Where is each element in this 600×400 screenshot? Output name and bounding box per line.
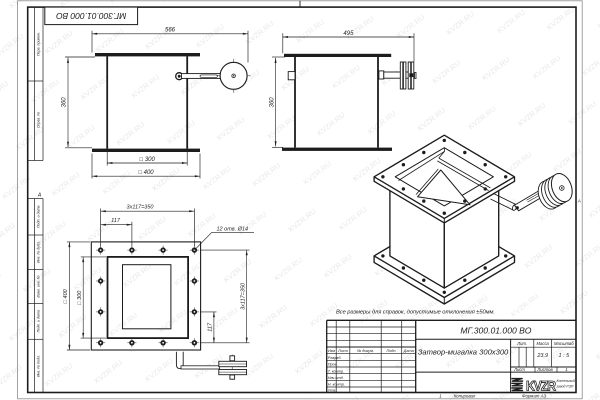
svg-text:Дата: Дата — [403, 349, 414, 353]
svg-text:360: 360 — [62, 97, 68, 108]
svg-text:Т. контр.: Т. контр. — [328, 369, 344, 373]
svg-text:□ 400: □ 400 — [138, 170, 154, 176]
svg-text:Лит.: Лит. — [516, 341, 527, 346]
svg-text:3х117=350: 3х117=350 — [240, 282, 246, 310]
svg-text:117: 117 — [208, 322, 214, 332]
svg-text:А: А — [577, 199, 581, 204]
svg-text:KVZR: KVZR — [526, 378, 556, 394]
svg-text:завод РЭП: завод РЭП — [556, 385, 574, 389]
svg-text:1 : 5: 1 : 5 — [558, 353, 570, 359]
svg-text:Затвор-мигалка 300х300: Затвор-мигалка 300х300 — [418, 347, 509, 356]
svg-text:МГ.300.01.000 ВО: МГ.300.01.000 ВО — [56, 11, 127, 21]
svg-text:Все размеры для справок, допус: Все размеры для справок, допустимые откл… — [336, 309, 495, 315]
svg-text:Пров.: Пров. — [328, 363, 338, 367]
svg-text:□ 400: □ 400 — [63, 288, 69, 303]
svg-text:Подп. и дата: Подп. и дата — [37, 205, 41, 228]
svg-text:117: 117 — [111, 218, 121, 224]
svg-text:□ 300: □ 300 — [77, 290, 83, 305]
svg-text:Подп.: Подп. — [386, 349, 396, 353]
svg-text:Утв.: Утв. — [328, 389, 337, 393]
svg-text:Взам. инв. №: Взам. инв. № — [37, 275, 41, 297]
svg-text:Масштаб: Масштаб — [554, 341, 574, 346]
svg-text:Котельный: Котельный — [557, 379, 576, 383]
svg-text:1: 1 — [565, 367, 567, 372]
svg-text:Перв. примен.: Перв. примен. — [37, 32, 41, 56]
svg-text:Справ. №: Справ. № — [37, 112, 41, 128]
svg-text:Листов: Листов — [536, 367, 553, 372]
svg-text:566: 566 — [165, 28, 176, 34]
svg-text:Инв. № дубл.: Инв. № дубл. — [37, 241, 41, 263]
svg-text:495: 495 — [343, 31, 354, 37]
svg-text:Инв. № подл.: Инв. № подл. — [37, 355, 41, 377]
svg-text:А: А — [37, 193, 42, 199]
svg-text:□ 300: □ 300 — [140, 157, 156, 163]
svg-text:Копировал: Копировал — [454, 394, 476, 399]
svg-text:Подп. и дата: Подп. и дата — [37, 310, 41, 333]
svg-text:МГ.300.01.000 ВО: МГ.300.01.000 ВО — [460, 325, 531, 335]
svg-text:Изм: Изм — [328, 349, 335, 353]
svg-text:360: 360 — [269, 97, 275, 108]
svg-text:Н. контр.: Н. контр. — [328, 383, 345, 387]
svg-text:Масса: Масса — [537, 341, 550, 346]
svg-text:Разраб.: Разраб. — [328, 356, 342, 360]
svg-text:3х117=350: 3х117=350 — [127, 205, 155, 211]
svg-text:№ докум.: № докум. — [357, 349, 374, 353]
svg-text:Нач.отд.: Нач.отд. — [328, 376, 344, 380]
svg-text:Формат А3: Формат А3 — [522, 394, 547, 399]
svg-text:23,9: 23,9 — [536, 353, 548, 359]
svg-text:Лист: Лист — [337, 349, 348, 353]
svg-text:Лист: Лист — [513, 367, 525, 372]
svg-text:12 отв. Ø14: 12 отв. Ø14 — [217, 226, 249, 232]
